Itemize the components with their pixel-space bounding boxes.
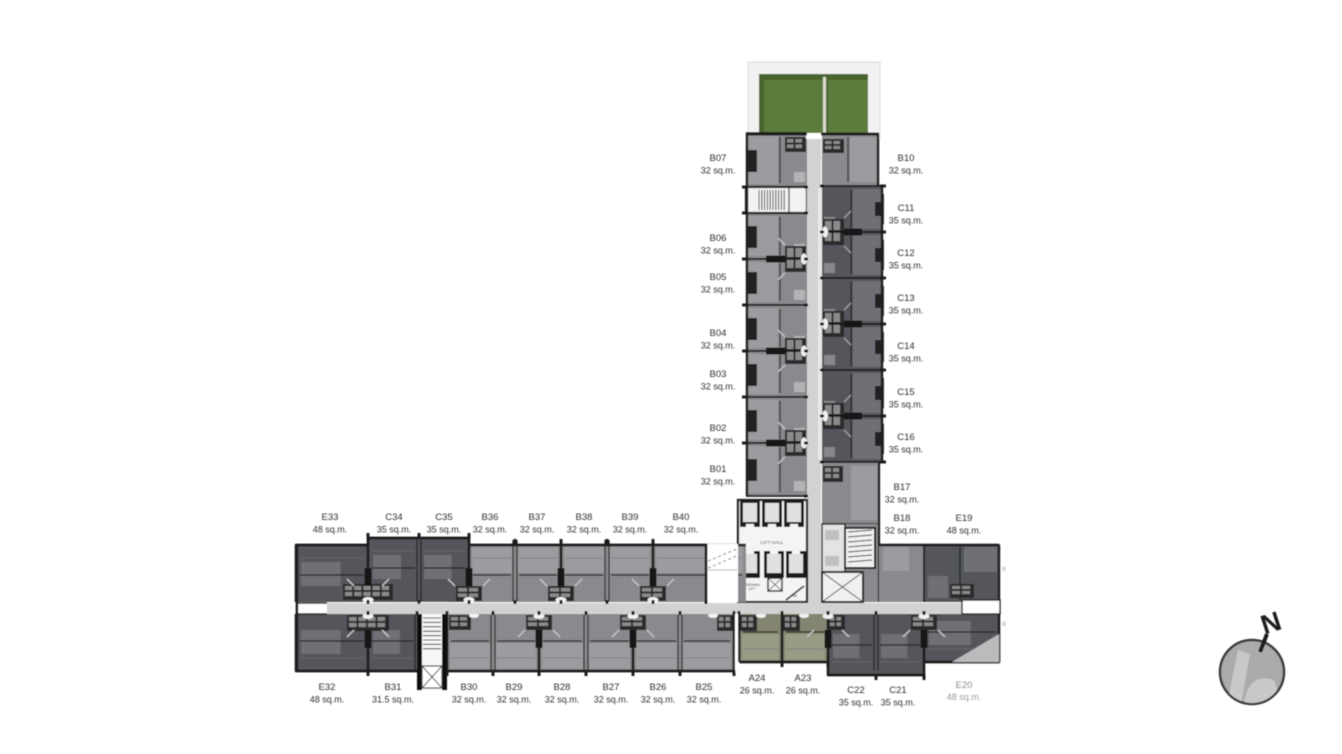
svg-text:32 sq.m.: 32 sq.m.	[452, 695, 487, 705]
svg-text:E33: E33	[322, 512, 339, 523]
svg-text:32 sq.m.: 32 sq.m.	[701, 477, 736, 487]
svg-text:48 sq.m.: 48 sq.m.	[310, 695, 345, 705]
svg-text:B04: B04	[710, 328, 727, 339]
svg-text:E19: E19	[956, 513, 973, 524]
svg-text:E20: E20	[956, 680, 973, 691]
svg-text:32 sq.m.: 32 sq.m.	[701, 285, 736, 295]
svg-text:B03: B03	[710, 369, 727, 380]
svg-text:C22: C22	[847, 685, 864, 696]
svg-text:B25: B25	[696, 682, 713, 693]
svg-text:35 sq.m.: 35 sq.m.	[427, 525, 462, 535]
svg-text:32 sq.m.: 32 sq.m.	[885, 526, 920, 536]
svg-text:35 sq.m.: 35 sq.m.	[377, 525, 412, 535]
svg-text:C34: C34	[385, 512, 402, 523]
svg-text:B27: B27	[603, 682, 620, 693]
svg-text:35 sq.m.: 35 sq.m.	[881, 698, 916, 708]
svg-text:32 sq.m.: 32 sq.m.	[497, 695, 532, 705]
svg-text:35 sq.m.: 35 sq.m.	[889, 216, 924, 226]
svg-text:32 sq.m.: 32 sq.m.	[545, 695, 580, 705]
svg-text:32 sq.m.: 32 sq.m.	[687, 695, 722, 705]
svg-text:B40: B40	[673, 512, 690, 523]
svg-text:48 sq.m.: 48 sq.m.	[313, 525, 348, 535]
svg-text:B02: B02	[710, 423, 727, 434]
svg-text:B39: B39	[622, 512, 639, 523]
svg-text:A23: A23	[795, 673, 812, 684]
svg-text:B36: B36	[482, 512, 499, 523]
svg-text:32 sq.m.: 32 sq.m.	[885, 495, 920, 505]
svg-text:C16: C16	[897, 432, 914, 443]
svg-text:B28: B28	[554, 682, 571, 693]
svg-text:B38: B38	[576, 512, 593, 523]
svg-text:E32: E32	[319, 682, 336, 693]
svg-text:31.5 sq.m.: 31.5 sq.m.	[372, 695, 414, 705]
svg-text:C14: C14	[897, 341, 914, 352]
svg-text:48 sq.m.: 48 sq.m.	[947, 692, 982, 702]
svg-text:32 sq.m.: 32 sq.m.	[473, 525, 508, 535]
svg-text:32 sq.m.: 32 sq.m.	[889, 166, 924, 176]
svg-text:35 sq.m.: 35 sq.m.	[889, 354, 924, 364]
svg-text:A24: A24	[749, 673, 766, 684]
svg-text:B10: B10	[898, 153, 915, 164]
svg-text:B29: B29	[506, 682, 523, 693]
svg-text:C12: C12	[897, 248, 914, 259]
svg-text:32 sq.m.: 32 sq.m.	[613, 525, 648, 535]
svg-text:B05: B05	[710, 272, 727, 283]
svg-text:35 sq.m.: 35 sq.m.	[889, 400, 924, 410]
svg-text:LIFT: LIFT	[749, 587, 756, 591]
svg-text:32 sq.m.: 32 sq.m.	[701, 246, 736, 256]
svg-text:32 sq.m.: 32 sq.m.	[701, 436, 736, 446]
svg-text:B06: B06	[710, 233, 727, 244]
svg-text:B26: B26	[650, 682, 667, 693]
svg-text:32 sq.m.: 32 sq.m.	[701, 382, 736, 392]
svg-text:35 sq.m.: 35 sq.m.	[839, 698, 874, 708]
svg-text:32 sq.m.: 32 sq.m.	[701, 166, 736, 176]
svg-text:AB: AB	[793, 594, 797, 598]
svg-text:B07: B07	[710, 153, 727, 164]
svg-text:32 sq.m.: 32 sq.m.	[594, 695, 629, 705]
svg-text:32 sq.m.: 32 sq.m.	[701, 341, 736, 351]
svg-text:B30: B30	[461, 682, 478, 693]
svg-text:35 sq.m.: 35 sq.m.	[889, 445, 924, 455]
svg-text:35 sq.m.: 35 sq.m.	[889, 306, 924, 316]
svg-text:B31: B31	[385, 682, 402, 693]
svg-text:48 sq.m.: 48 sq.m.	[947, 526, 982, 536]
svg-text:B37: B37	[529, 512, 546, 523]
svg-text:B18: B18	[894, 513, 911, 524]
svg-text:B01: B01	[710, 464, 727, 475]
svg-text:C13: C13	[897, 293, 914, 304]
svg-text:C35: C35	[435, 512, 452, 523]
svg-text:35 sq.m.: 35 sq.m.	[889, 261, 924, 271]
svg-text:C11: C11	[898, 203, 915, 214]
svg-text:26 sq.m.: 26 sq.m.	[740, 686, 775, 696]
svg-text:32 sq.m.: 32 sq.m.	[664, 525, 699, 535]
svg-text:32 sq.m.: 32 sq.m.	[567, 525, 602, 535]
svg-text:C21: C21	[889, 685, 906, 696]
svg-text:C15: C15	[897, 387, 914, 398]
svg-text:32 sq.m.: 32 sq.m.	[520, 525, 555, 535]
svg-text:LIFT HALL: LIFT HALL	[760, 540, 783, 546]
svg-text:32 sq.m.: 32 sq.m.	[641, 695, 676, 705]
svg-text:26 sq.m.: 26 sq.m.	[786, 686, 821, 696]
svg-text:B17: B17	[894, 482, 911, 493]
